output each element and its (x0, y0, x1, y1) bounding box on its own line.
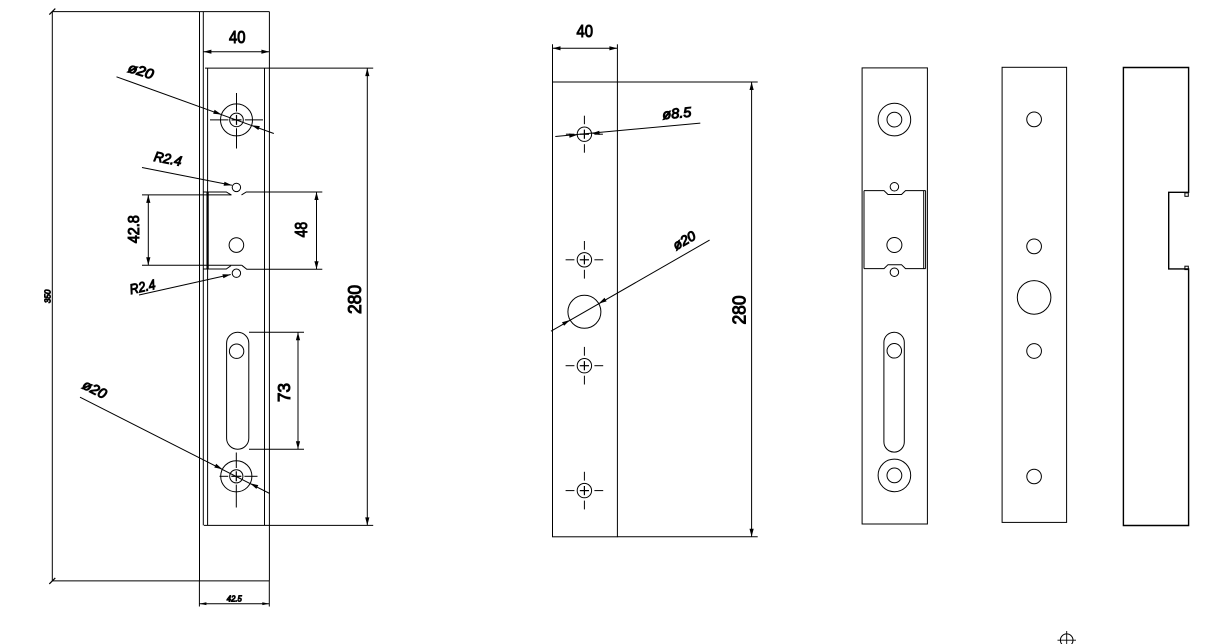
svg-text:280: 280 (345, 285, 365, 314)
svg-text:42.8: 42.8 (126, 215, 143, 243)
svg-text:R2.4: R2.4 (153, 148, 184, 169)
svg-text:42.5: 42.5 (227, 594, 242, 604)
svg-text:ø8.5: ø8.5 (662, 104, 693, 123)
svg-text:48: 48 (291, 222, 311, 238)
svg-text:40: 40 (229, 27, 246, 47)
svg-text:ø20: ø20 (126, 59, 156, 82)
svg-text:R2.4: R2.4 (128, 276, 157, 297)
svg-text:40: 40 (577, 21, 594, 41)
svg-text:280: 280 (730, 296, 750, 325)
svg-text:73: 73 (274, 383, 294, 402)
svg-text:350: 350 (43, 289, 52, 303)
svg-text:ø20: ø20 (80, 376, 110, 402)
